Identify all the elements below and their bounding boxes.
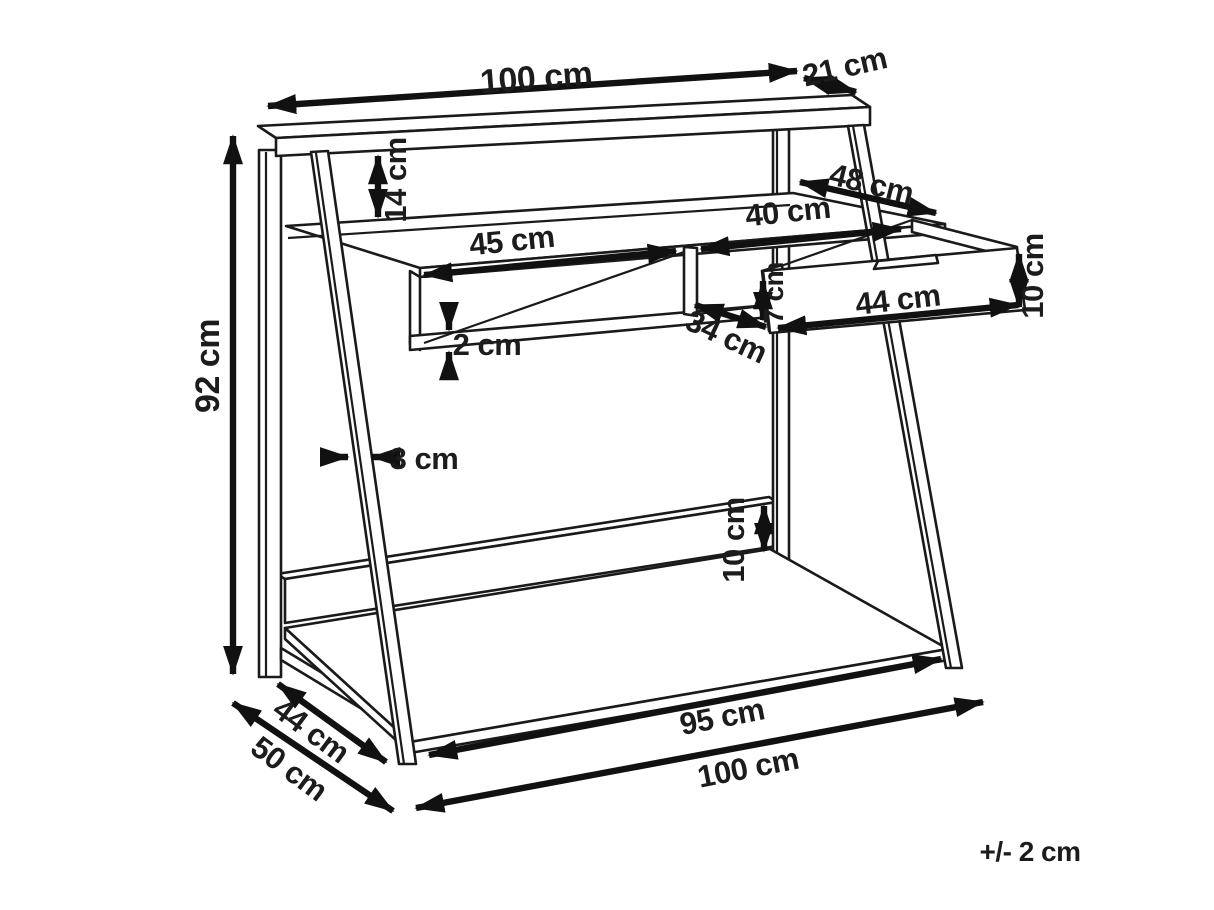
dim-label-frame-thickness: 3 cm bbox=[390, 441, 459, 476]
left-rear-leg bbox=[259, 150, 281, 677]
dim-label-back-rail-height: 10 cm bbox=[716, 497, 751, 582]
dim-label-drawer-side-height: 7 cm bbox=[758, 262, 789, 324]
diagram-canvas: 100 cm 21 cm 92 cm 14 cm 48 cm 40 cm 45 … bbox=[0, 0, 1214, 910]
dim-label-overall-height: 92 cm bbox=[189, 319, 227, 413]
dim-label-panel-thickness: 2 cm bbox=[453, 327, 522, 362]
dim-label-riser-depth: 21 cm bbox=[799, 40, 890, 93]
dim-label-top-width: 100 cm bbox=[479, 55, 594, 102]
tolerance-note: +/- 2 cm bbox=[979, 836, 1080, 867]
dim-label-riser-height: 14 cm bbox=[378, 137, 413, 222]
dim-label-drawer-height: 10 cm bbox=[1015, 233, 1050, 318]
desk-dimension-diagram: 100 cm 21 cm 92 cm 14 cm 48 cm 40 cm 45 … bbox=[0, 0, 1214, 910]
